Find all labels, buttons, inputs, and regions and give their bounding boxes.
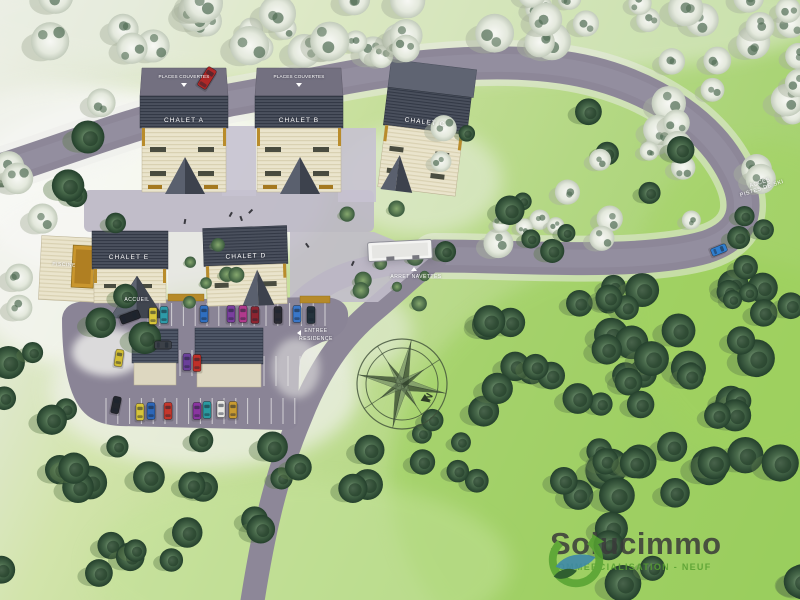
car <box>159 307 170 326</box>
car <box>292 306 303 325</box>
tree-conifer <box>568 98 602 125</box>
tree-conifer <box>0 386 16 410</box>
car <box>238 306 249 325</box>
car <box>135 404 146 423</box>
solucimmo-logo-icon <box>544 528 608 592</box>
tree-conifer <box>0 556 15 584</box>
car <box>163 403 174 422</box>
car <box>182 354 193 373</box>
car <box>202 402 213 421</box>
car <box>146 403 157 422</box>
car <box>228 402 239 421</box>
tree-conifer <box>632 182 660 204</box>
tree-snowy <box>778 69 800 98</box>
shuttle-bus <box>367 239 436 265</box>
car <box>192 403 203 422</box>
car <box>216 401 227 420</box>
car <box>226 306 237 325</box>
car <box>273 307 284 326</box>
tree-conifer <box>171 472 206 499</box>
building-chalet-d <box>203 226 290 308</box>
tree-snowy <box>476 228 513 259</box>
car <box>148 308 159 327</box>
car <box>306 307 317 326</box>
car <box>199 306 210 325</box>
tree-conifer <box>124 461 164 493</box>
car <box>250 307 261 326</box>
site-plan: CHALET A CHALET B CHALET C CHALET E CHAL… <box>0 0 800 600</box>
solucimmo-logo: Solucimmo COMMERCIALISATION - NEUF <box>544 528 722 572</box>
tree-conifer <box>77 559 112 587</box>
tree-snowy <box>584 149 611 171</box>
tree-green-small <box>409 296 427 312</box>
shuttle-stop-arrow-icon <box>411 267 417 271</box>
car <box>192 355 203 374</box>
entrance-arrow-icon <box>297 330 301 336</box>
places-couvertes-arrow-icon-a <box>181 83 187 87</box>
site-plan-canvas <box>0 0 800 600</box>
building-garage-2 <box>195 328 263 387</box>
tree-snowy <box>695 78 725 103</box>
tree-snowy <box>583 226 614 252</box>
building-piscine <box>38 235 99 302</box>
tree-snowy <box>635 141 659 161</box>
tree-conifer <box>28 405 67 435</box>
tree-snowy <box>779 43 800 70</box>
tree-conifer <box>464 305 505 337</box>
places-couvertes-arrow-icon-b <box>296 83 302 87</box>
tree-conifer <box>346 435 384 465</box>
tree-conifer <box>330 474 367 503</box>
tree-snowy <box>549 179 580 205</box>
car <box>153 340 172 351</box>
